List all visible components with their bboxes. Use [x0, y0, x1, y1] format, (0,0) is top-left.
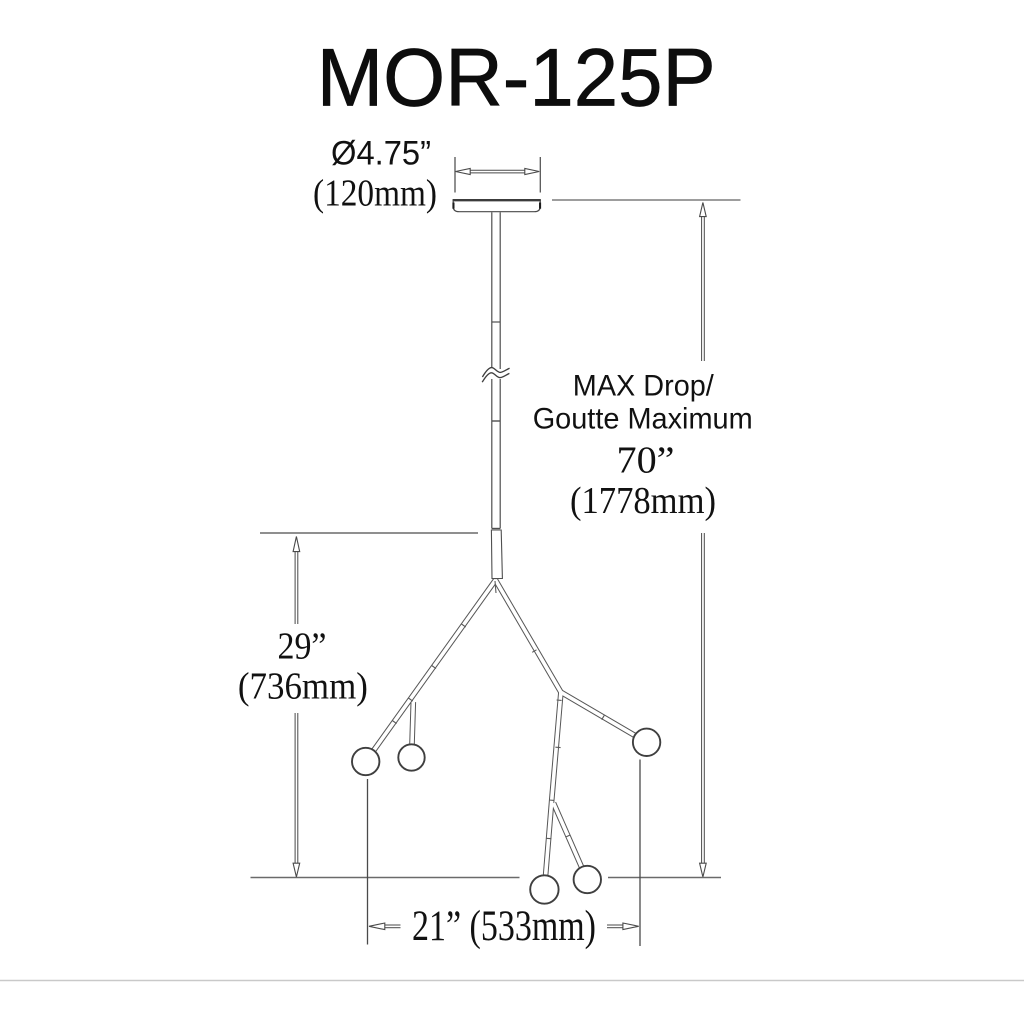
svg-text:(120mm): (120mm): [313, 173, 437, 215]
svg-text:21” (533mm): 21” (533mm): [412, 903, 596, 950]
svg-text:Ø4.75”: Ø4.75”: [331, 134, 431, 172]
svg-text:(1778mm): (1778mm): [570, 480, 716, 522]
svg-text:MAX Drop/: MAX Drop/: [573, 370, 715, 403]
svg-text:Goutte Maximum: Goutte Maximum: [533, 403, 753, 436]
svg-text:70”: 70”: [617, 440, 675, 482]
svg-text:29”: 29”: [278, 626, 327, 668]
svg-text:MOR-125P: MOR-125P: [317, 33, 716, 124]
svg-text:(736mm): (736mm): [238, 666, 368, 708]
